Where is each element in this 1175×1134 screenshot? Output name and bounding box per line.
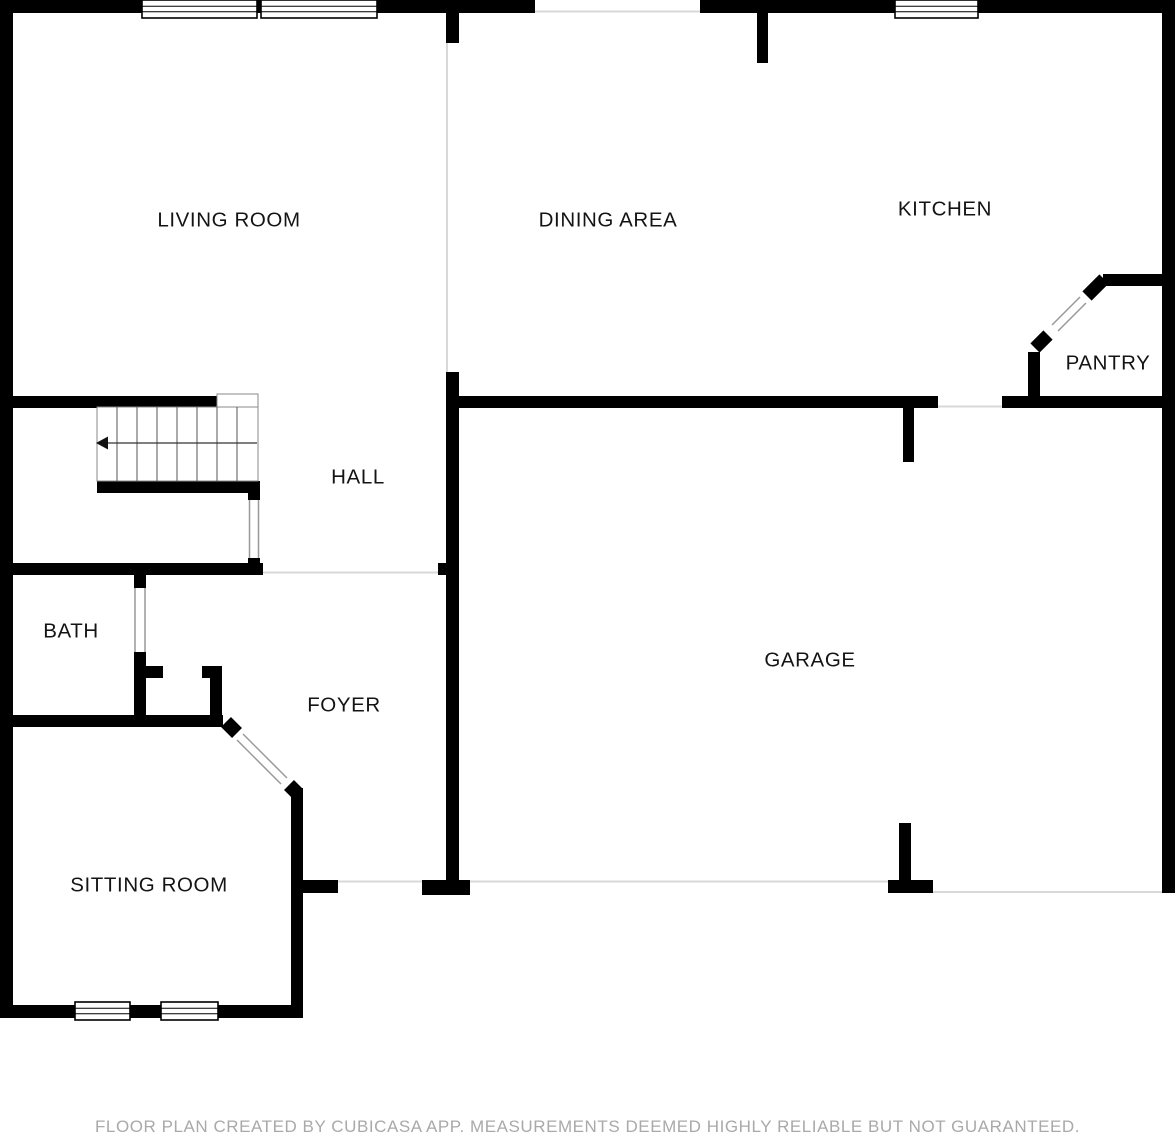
wall-pantry-left (1028, 352, 1040, 408)
footer-disclaimer: FLOOR PLAN CREATED BY CUBICASA APP. MEAS… (0, 1117, 1175, 1134)
wall-center-vertical (446, 372, 459, 895)
wall-stairs-side-lower (248, 558, 260, 575)
wall-closet-vertical (210, 678, 222, 715)
wall-foyer-diagonal-upper (226, 722, 237, 733)
wall-bath-right-upper (134, 575, 146, 588)
room-label-kitchen: KITCHEN (898, 198, 992, 221)
wall-left-exterior (0, 0, 13, 1018)
room-label-living-room: LIVING ROOM (157, 209, 300, 232)
interior-walls (0, 13, 1162, 1018)
window-kitchen (895, 0, 978, 18)
wall-bath-bottom (0, 715, 223, 727)
wall-closet-top-bar (202, 666, 222, 678)
wall-foyer-diagonal-lower (289, 785, 298, 794)
wall-foyer-bottom-piece (303, 880, 338, 893)
window-frame (261, 0, 377, 18)
room-divider-lines (263, 12, 1162, 893)
window-living-room-right (261, 0, 377, 18)
room-label-hall: HALL (331, 466, 385, 489)
staircase (96, 394, 258, 481)
room-label-sitting-room: SITTING ROOM (70, 874, 228, 897)
wall-right-exterior (1162, 0, 1175, 893)
room-label-dining-area: DINING AREA (539, 209, 678, 232)
window-frame (142, 0, 257, 18)
door-openings (135, 297, 1086, 784)
floor-plan-canvas: LIVING ROOM DINING AREA KITCHEN PANTRY H… (0, 0, 1175, 1134)
window-sitting-room-right (161, 1002, 218, 1020)
pantry-door-edge-upper (1052, 297, 1080, 325)
wall-stairs-side-upper (248, 481, 260, 500)
room-label-pantry: PANTRY (1066, 352, 1151, 375)
wall-stairs-bottom-bar (97, 481, 250, 493)
wall-garage-top (459, 396, 938, 408)
floor-plan-drawing: LIVING ROOM DINING AREA KITCHEN PANTRY H… (0, 0, 1175, 1134)
wall-pantry-diagonal-upper (1087, 279, 1104, 296)
wall-pantry-top (1103, 274, 1162, 286)
window-frame (75, 1002, 130, 1020)
wall-sitting-room-right (291, 788, 303, 1018)
wall-garage-stub-lower-foot (888, 880, 933, 893)
room-label-foyer: FOYER (307, 694, 381, 717)
wall-hall-bottom (13, 563, 263, 575)
sitting-door-edge-upper (243, 734, 287, 778)
exterior-walls (0, 0, 1175, 1018)
window-living-room-left (142, 0, 257, 18)
wall-sitting-room-bottom (0, 1005, 303, 1018)
wall-living-dining-stub-top (446, 13, 459, 43)
wall-pantry-bottom (1002, 396, 1162, 408)
wall-garage-stub-upper (903, 408, 914, 462)
windows (75, 0, 978, 1020)
stairs-landing (217, 394, 258, 407)
room-label-garage: GARAGE (764, 649, 855, 672)
room-labels: LIVING ROOM DINING AREA KITCHEN PANTRY H… (43, 198, 1150, 897)
pantry-door-edge-lower (1058, 303, 1086, 331)
wall-garage-stub-lower (899, 823, 911, 880)
room-label-bath: BATH (43, 620, 99, 643)
wall-pantry-diagonal-lower (1035, 335, 1048, 348)
window-sitting-room-left (75, 1002, 130, 1020)
wall-center-vertical-foot (422, 880, 470, 895)
wall-hall-bottom-corner (438, 563, 446, 575)
wall-bath-stub (146, 666, 163, 678)
window-frame (161, 1002, 218, 1020)
window-frame (895, 0, 978, 18)
sitting-door-edge-lower (237, 740, 281, 784)
wall-kitchen-dining-stub (757, 13, 768, 63)
